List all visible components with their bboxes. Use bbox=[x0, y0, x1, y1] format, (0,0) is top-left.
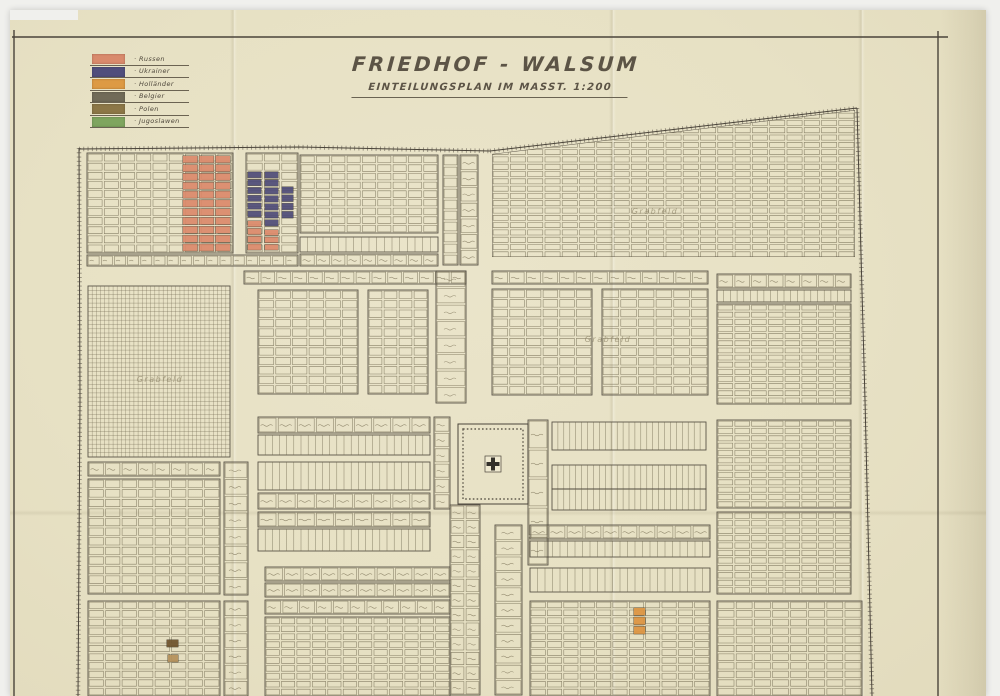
grave-block bbox=[258, 290, 358, 394]
grave-block bbox=[492, 110, 855, 257]
grave-block bbox=[244, 271, 466, 284]
colored-grave-group bbox=[265, 230, 279, 250]
grave-block bbox=[87, 255, 298, 266]
grave-block bbox=[530, 601, 710, 696]
grave-block bbox=[717, 512, 851, 594]
grave-block bbox=[717, 290, 851, 302]
grave-block bbox=[88, 479, 220, 594]
legend-item: Belgier bbox=[90, 91, 189, 104]
grave-block bbox=[265, 567, 450, 581]
grave-block bbox=[450, 505, 480, 695]
legend-item: Holländer bbox=[90, 78, 189, 91]
grave-block bbox=[265, 583, 450, 597]
legend-color-swatch bbox=[92, 92, 125, 102]
legend-color-swatch bbox=[92, 67, 125, 77]
grave-block bbox=[88, 286, 230, 457]
colored-grave-group bbox=[265, 172, 279, 226]
grave-block bbox=[434, 417, 450, 509]
colored-grave-group bbox=[168, 655, 179, 662]
grave-block bbox=[258, 462, 430, 490]
grave-block bbox=[224, 462, 248, 595]
grave-block bbox=[258, 529, 430, 551]
pencil-field-label: Grabfeld bbox=[137, 375, 184, 384]
grave-block bbox=[460, 155, 478, 265]
colored-grave-group bbox=[634, 608, 646, 634]
pencil-field-label: Grabfeld bbox=[585, 335, 632, 344]
grave-block bbox=[258, 435, 430, 455]
map-subtitle: EINTEILUNGSPLAN IM MASST. 1:200 bbox=[351, 82, 628, 98]
legend-item: Russen bbox=[90, 53, 189, 66]
grave-block bbox=[552, 422, 706, 450]
memorial-plot bbox=[458, 424, 528, 504]
legend: Russen Ukrainer Holländer Belgier Polen … bbox=[90, 53, 189, 128]
grave-block bbox=[300, 155, 438, 233]
grave-block bbox=[443, 155, 458, 265]
cemetery-boundary-hedge bbox=[857, 108, 872, 696]
grave-block bbox=[717, 274, 851, 288]
map-title: FRIEDHOF - WALSUM bbox=[351, 52, 629, 76]
legend-label: Jugoslawen bbox=[134, 117, 180, 125]
grave-block bbox=[258, 417, 430, 433]
grave-block bbox=[717, 304, 851, 404]
grave-block bbox=[300, 237, 438, 252]
legend-label: Ukrainer bbox=[134, 67, 170, 75]
legend-color-swatch bbox=[92, 117, 125, 127]
grave-block bbox=[224, 601, 248, 696]
colored-grave-group bbox=[248, 172, 262, 217]
grave-block bbox=[258, 512, 430, 527]
grave-block bbox=[492, 271, 708, 284]
colored-grave-group bbox=[248, 221, 262, 250]
legend-label: Belgier bbox=[134, 92, 165, 100]
legend-color-swatch bbox=[92, 104, 125, 114]
colored-grave-group bbox=[183, 156, 231, 251]
legend-item: Jugoslawen bbox=[90, 116, 189, 129]
grave-block bbox=[88, 601, 220, 696]
grave-block bbox=[265, 600, 450, 614]
grave-block bbox=[258, 493, 430, 509]
grave-block bbox=[530, 568, 710, 592]
legend-item: Polen bbox=[90, 103, 189, 116]
grave-block bbox=[530, 541, 710, 557]
legend-color-swatch bbox=[92, 79, 125, 89]
grave-block bbox=[717, 420, 851, 508]
grave-block bbox=[88, 462, 220, 476]
legend-label: Russen bbox=[134, 55, 165, 63]
grave-block bbox=[552, 465, 706, 489]
grave-block bbox=[265, 617, 450, 696]
grave-block bbox=[552, 489, 706, 510]
grave-block bbox=[300, 254, 438, 266]
grave-block bbox=[492, 289, 592, 395]
grave-block bbox=[368, 290, 428, 394]
grave-block bbox=[436, 271, 466, 403]
legend-label: Holländer bbox=[134, 80, 174, 88]
legend-color-swatch bbox=[92, 54, 125, 64]
grave-block bbox=[530, 525, 710, 539]
legend-label: Polen bbox=[134, 105, 159, 113]
grave-block bbox=[717, 601, 862, 696]
legend-item: Ukrainer bbox=[90, 66, 189, 79]
cemetery-boundary-hedge bbox=[78, 148, 80, 696]
scanned-map-sheet: GrabfeldGrabfeldGrabfeld FRIEDHOF - WALS… bbox=[0, 0, 1000, 696]
colored-grave-group bbox=[282, 187, 294, 218]
colored-grave-group bbox=[167, 640, 179, 647]
pencil-field-label: Grabfeld bbox=[632, 207, 679, 216]
grave-block bbox=[495, 525, 522, 695]
cemetery-boundary-hedge bbox=[79, 147, 490, 151]
title-block: FRIEDHOF - WALSUM EINTEILUNGSPLAN IM MAS… bbox=[352, 52, 628, 98]
